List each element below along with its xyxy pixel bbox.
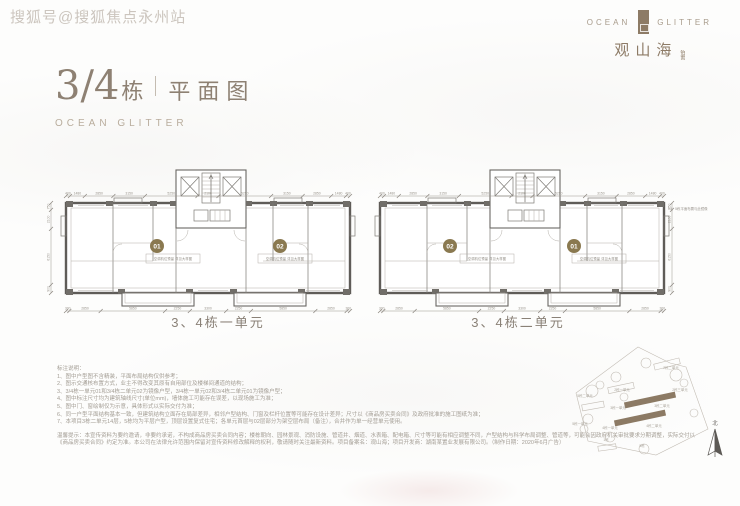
svg-text:1480: 1480 [335,191,343,195]
svg-text:6150: 6150 [668,253,672,261]
svg-text:2250: 2250 [174,306,182,310]
site-label: 2栋三单元 [672,387,688,392]
svg-text:5250: 5250 [555,191,563,195]
site-label: 4栋二单元 [646,423,662,428]
svg-text:2100: 2100 [204,191,212,195]
unit-note-left: 空调机位预留 详见大样图 [154,256,192,261]
svg-text:5850: 5850 [129,306,137,310]
brand-logo: OCEAN GLITTER 观山海 铂寓 [587,10,712,60]
svg-text:2850: 2850 [327,306,335,310]
svg-text:300: 300 [660,306,666,310]
svg-text:3150: 3150 [125,191,133,195]
svg-text:2250: 2250 [488,306,496,310]
svg-text:5850: 5850 [279,306,287,310]
svg-text:400: 400 [379,191,385,195]
svg-text:2850: 2850 [409,191,417,195]
floorplan-unit2: 02 01 空调机位预留 详见大样图 空调机位预留 详见大样图 40014802… [375,170,708,313]
site-label: 4栋一单元 [602,425,618,430]
logo-word-glitter: GLITTER [657,18,712,27]
svg-text:3150: 3150 [597,191,605,195]
svg-text:2100: 2100 [668,215,672,223]
svg-text:3150: 3150 [283,191,291,195]
svg-text:1480: 1480 [388,191,396,195]
svg-text:3300: 3300 [204,306,212,310]
svg-text:5850: 5850 [443,306,451,310]
floorplan-drawing: 01 02 空调机位预留 详见大样图 空调机位预留 详见大样图 40014802… [0,150,740,328]
north-arrow-icon: 北 [708,419,722,457]
svg-text:5250: 5250 [167,191,175,195]
logo-cn-suffix: 铂寓 [679,50,684,60]
svg-text:400: 400 [65,191,71,195]
svg-text:5250: 5250 [241,191,249,195]
site-trees [580,358,698,454]
site-label: 3栋二单元 [654,403,670,408]
page-header: 3/4 栋 平面图 OCEAN GLITTER [55,66,255,129]
logo-cn-name: 观山海 [614,39,677,60]
svg-text:2250: 2250 [549,306,557,310]
svg-text:2250: 2250 [235,306,243,310]
watermark-text: 搜狐号@搜狐焦点永州站 [10,6,186,27]
unit-note-right: 空调机位预留 详见大样图 [580,256,618,261]
svg-text:5850: 5850 [593,306,601,310]
title-dong: 栋 [121,74,143,106]
svg-text:3300: 3300 [518,306,526,310]
svg-text:5250: 5250 [481,191,489,195]
svg-text:2850: 2850 [95,191,103,195]
site-label: 2栋二单元 [663,365,679,370]
caption-unit2: 3、4栋二单元 [418,312,618,331]
svg-text:400: 400 [345,191,351,195]
floorplan-unit1: 01 02 空调机位预留 详见大样图 空调机位预留 详见大样图 40014802… [47,170,356,313]
svg-text:2850: 2850 [627,191,635,195]
svg-text:900: 900 [668,286,672,292]
svg-text:900: 900 [47,286,51,292]
north-label: 北 [712,419,718,427]
svg-text:1480: 1480 [649,191,657,195]
unit-badge-01-label: 01 [570,243,578,250]
unit-note-right: 空调机位预留 详见大样图 [266,256,304,261]
page-title: 平面图 [168,74,255,106]
title-building-number: 3/4 [55,66,119,106]
svg-text:300: 300 [379,306,385,310]
site-label: 5栋 [639,443,645,448]
caption-unit1: 3、4栋一单元 [118,312,318,331]
svg-text:3150: 3150 [439,191,447,195]
svg-text:2850: 2850 [395,306,403,310]
svg-text:750: 750 [47,203,51,209]
site-key-plan: 2栋二单元2栋一单元2栋三单元5栋二单元5栋一单元3栋一单元3栋二单元4栋一单元… [558,333,728,468]
dimension-line-side: 75021006150900 [668,201,675,295]
svg-text:2100: 2100 [518,191,526,195]
svg-text:300: 300 [346,306,352,310]
dimension-line-side: 75021006150900 [47,201,54,295]
side-annotation: 03、5栋平面布置与此镜像 [668,206,708,211]
page: 搜狐号@搜狐焦点永州站 OCEAN GLITTER 观山海 铂寓 3/4 栋 平… [0,0,740,506]
svg-text:2850: 2850 [641,306,649,310]
unit-note-left: 空调机位预留 详见大样图 [468,256,506,261]
svg-text:6150: 6150 [47,253,51,261]
site-label: 5栋二单元 [577,393,593,398]
title-divider [155,76,156,96]
svg-text:300: 300 [65,306,71,310]
svg-text:1480: 1480 [74,191,82,195]
unit-badge-02-label: 02 [446,243,454,250]
svg-text:2850: 2850 [81,306,89,310]
site-label: 2栋一单元 [614,387,630,392]
site-label: 1栋 [603,437,609,442]
svg-text:2850: 2850 [313,191,321,195]
unit-badge-01-label: 01 [153,243,161,250]
page-subtitle: OCEAN GLITTER [55,118,255,129]
svg-text:2100: 2100 [47,215,51,223]
brand-seal-icon [638,10,649,34]
unit-badge-02-label: 02 [276,243,284,250]
logo-word-ocean: OCEAN [587,18,630,27]
site-label: 5栋一单元 [572,421,588,426]
svg-text:400: 400 [659,191,665,195]
site-label: 3栋一单元 [610,405,626,410]
